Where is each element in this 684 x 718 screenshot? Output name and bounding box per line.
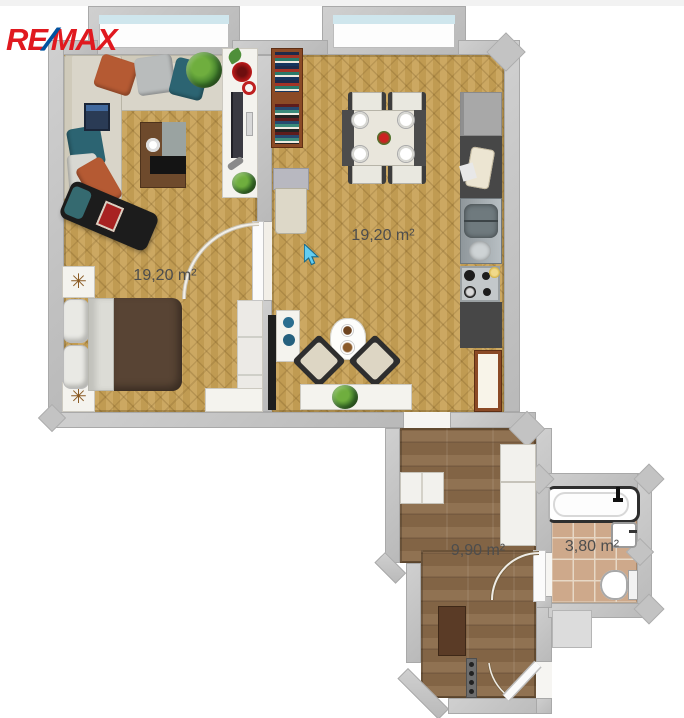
door-leaf-divider[interactable] (253, 222, 263, 300)
red-ring-icon (242, 81, 256, 95)
plate-icon (352, 146, 368, 162)
toilet-bowl (600, 570, 628, 600)
tv-flatscreen[interactable] (231, 92, 243, 158)
bathtub[interactable] (548, 486, 640, 523)
window-1-glass (99, 15, 229, 24)
coffee-table[interactable] (140, 122, 186, 188)
blue-decor-dot (283, 317, 294, 328)
centerpiece-icon (377, 131, 391, 145)
burner-icon (464, 286, 476, 298)
tv-sideboard[interactable] (222, 48, 258, 198)
tub-faucet-icon (613, 498, 623, 502)
kitchen-counter-2[interactable] (460, 302, 502, 348)
kettle-icon (489, 267, 500, 278)
kitchen-sink-unit[interactable] (460, 198, 502, 264)
window-2-glass (333, 15, 455, 24)
bed-pillow-2 (64, 346, 88, 388)
cup-icon (146, 138, 160, 152)
mouse-cursor-icon (304, 244, 321, 266)
floorplan-canvas: ✳ ✳ (0, 0, 684, 718)
sideboard-bottom[interactable] (300, 384, 412, 410)
wall-divider-top (257, 55, 272, 222)
wall-bottom-main (48, 412, 404, 428)
coffee-table-black-shelf (150, 156, 186, 174)
wall-hall-right-corner (536, 698, 552, 714)
living-area-label: 19,20 m² (110, 267, 220, 285)
toilet-tank (628, 570, 638, 600)
coat-rack[interactable] (466, 658, 477, 698)
armchair-wall-back (273, 168, 309, 190)
red-bowl-icon (232, 62, 252, 82)
rack-knob (469, 680, 474, 685)
plant-living-icon[interactable] (186, 52, 222, 88)
armchair-wall-seat (275, 188, 307, 234)
remax-logo: RE/MAX (6, 22, 117, 58)
plate-icon (398, 112, 414, 128)
door-leaf-bathroom[interactable] (534, 551, 545, 601)
table-runner-right (414, 110, 426, 166)
kitchen-counter-1[interactable] (460, 136, 502, 198)
shaft-niche (552, 610, 592, 648)
cabinet-front (478, 354, 498, 408)
bed-pillow-1 (64, 300, 88, 342)
blue-decor-dot (283, 334, 295, 346)
coffee-cup-icon (341, 341, 354, 354)
stove-hob[interactable] (460, 266, 500, 302)
doorway-entrance[interactable] (536, 662, 552, 698)
bath-area-label: 3,80 m² (547, 538, 637, 556)
bed-blanket (114, 298, 182, 391)
books-top (275, 52, 299, 92)
books-bottom (275, 104, 299, 144)
doorway-dining-to-hall[interactable] (404, 412, 450, 428)
burner-icon (464, 270, 475, 281)
compass-decor-icon: ✳ (70, 271, 87, 293)
doormat-dark[interactable] (438, 606, 466, 656)
logo-max: MAX (51, 22, 117, 57)
rack-knob (469, 671, 474, 676)
dining-area-label: 19,20 m² (328, 227, 438, 245)
coffee-table-gray-top (162, 122, 186, 156)
wall-right (504, 40, 520, 412)
rack-knob (469, 662, 474, 667)
gray-tray (227, 156, 245, 171)
coffee-cup-icon (342, 325, 353, 336)
wardrobe-living-horizontal[interactable] (205, 388, 263, 412)
toilet[interactable] (600, 568, 638, 602)
rack-knob (469, 689, 474, 694)
double-bed[interactable] (62, 298, 182, 391)
magazine (96, 201, 125, 233)
nightstand-top[interactable]: ✳ (62, 266, 95, 298)
sink-divider (464, 220, 498, 222)
burner-icon (483, 288, 491, 296)
sink-faucet-icon (629, 530, 637, 533)
laptop-on-sofa[interactable] (84, 103, 110, 131)
fridge[interactable] (460, 92, 502, 136)
wall-hall-left-upper (385, 428, 400, 563)
hall-closet-left[interactable] (400, 472, 444, 504)
sink-round-basin (469, 241, 491, 261)
cabinet-blue-dots[interactable] (276, 310, 300, 362)
dining-table[interactable] (342, 110, 426, 166)
bookshelf[interactable] (271, 48, 303, 148)
plant-small-icon (232, 172, 256, 194)
dark-side-panel[interactable] (268, 315, 276, 410)
hall-area-label: 9,90 m² (422, 542, 534, 560)
remote-control (246, 112, 253, 136)
plant-sideboard-icon (332, 385, 358, 409)
plate-icon (398, 146, 414, 162)
hall-closet-right-1[interactable] (500, 444, 536, 482)
kitchen-tall-cabinet[interactable] (474, 350, 502, 412)
bed-sheet (88, 298, 114, 391)
hall-closet-right-2[interactable] (500, 482, 536, 546)
armchair-wall[interactable] (273, 168, 309, 236)
plate-icon (352, 112, 368, 128)
wall-hall-left-lower (406, 563, 421, 663)
